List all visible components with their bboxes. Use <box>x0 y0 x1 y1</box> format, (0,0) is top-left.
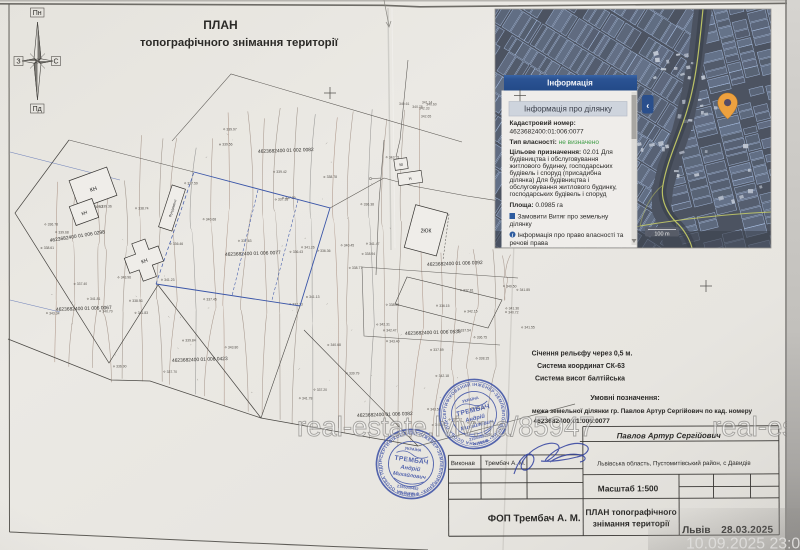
svg-text:337.20: 337.20 <box>317 388 327 392</box>
svg-text:Виконав: Виконав <box>451 460 476 467</box>
svg-text:real-estate.lviv.ua/85947: real-estate.lviv.ua/85947 <box>297 411 595 442</box>
svg-text:М: М <box>399 162 403 167</box>
svg-text:339.56: 339.56 <box>222 143 232 147</box>
svg-text:Площа: 0.0985 га: Площа: 0.0985 га <box>510 202 564 209</box>
svg-text:100 m: 100 m <box>654 232 670 238</box>
svg-text:Замовити Витяг про земельну: Замовити Витяг про земельну <box>518 214 609 221</box>
svg-text:житлового будинку, господарськ: житлового будинку, господарських <box>510 162 614 170</box>
svg-text:341.23: 341.23 <box>164 278 174 282</box>
svg-text:340.68: 340.68 <box>206 217 216 221</box>
svg-text:336.90: 336.90 <box>116 365 126 369</box>
svg-text:340.45: 340.45 <box>344 244 354 248</box>
svg-text:341.13: 341.13 <box>309 295 319 299</box>
svg-text:339.68: 339.68 <box>58 230 68 234</box>
svg-text:338.77: 338.77 <box>352 266 362 270</box>
svg-text:342.31: 342.31 <box>380 323 390 327</box>
svg-text:336.38: 336.38 <box>364 202 374 206</box>
svg-text:ділянку: ділянку <box>510 220 533 228</box>
svg-text:Пд: Пд <box>33 106 42 113</box>
svg-text:ФОП Трембач А. М.: ФОП Трембач А. М. <box>488 513 581 524</box>
svg-text:343.96: 343.96 <box>121 276 131 280</box>
svg-text:340.72: 340.72 <box>508 310 518 314</box>
svg-text:342.65: 342.65 <box>421 115 431 119</box>
svg-text:340.61: 340.61 <box>399 102 409 106</box>
svg-text:2ЮК: 2ЮК <box>421 229 432 235</box>
svg-text:будівництва і обслуговування: будівництва і обслуговування <box>510 155 599 163</box>
svg-text:337.54: 337.54 <box>461 328 471 332</box>
svg-text:Львівська область, Пустомитівс: Львівська область, Пустомитівський район… <box>597 460 751 468</box>
svg-text:339.42: 339.42 <box>276 170 286 174</box>
svg-text:Павлов Артур Сергійович: Павлов Артур Сергійович <box>617 431 722 440</box>
svg-text:Умовні позначення:: Умовні позначення: <box>590 394 659 402</box>
svg-text:342.15: 342.15 <box>467 310 477 314</box>
svg-text:336.46: 336.46 <box>173 242 183 246</box>
svg-text:338.78: 338.78 <box>327 175 337 179</box>
svg-text:337.45: 337.45 <box>206 297 216 301</box>
svg-text:337.63: 337.63 <box>241 239 251 243</box>
svg-text:338.15: 338.15 <box>479 357 489 361</box>
svg-text:4623682400:01:006:0077: 4623682400:01:006:0077 <box>510 129 584 136</box>
svg-text:341.55: 341.55 <box>524 326 534 330</box>
svg-text:Інформація про ділянку: Інформація про ділянку <box>524 105 612 114</box>
svg-text:обслуговування житлового будин: обслуговування житлового будинку, <box>510 183 618 191</box>
svg-text:342.18: 342.18 <box>439 374 449 378</box>
svg-text:339.97: 339.97 <box>226 127 236 131</box>
svg-text:речові права: речові права <box>510 239 549 247</box>
svg-text:336.78: 336.78 <box>48 223 58 227</box>
svg-text:‹: ‹ <box>646 101 649 111</box>
svg-text:Інформація: Інформація <box>547 79 593 88</box>
svg-text:Інформація про право власності: Інформація про право власності та <box>518 231 624 239</box>
svg-text:337.70: 337.70 <box>167 370 177 374</box>
svg-text:341.47: 341.47 <box>369 242 379 246</box>
svg-text:341.26: 341.26 <box>304 246 314 250</box>
svg-text:Тип власності: не визначено: Тип власності: не визначено <box>510 138 600 146</box>
svg-text:топографічного знімання терито: топографічного знімання території <box>140 37 339 49</box>
svg-text:342.33: 342.33 <box>419 107 429 111</box>
svg-text:338.74: 338.74 <box>138 207 148 211</box>
svg-text:С: С <box>53 59 58 66</box>
svg-text:будівель і споруд (присадибна: будівель і споруд (присадибна <box>510 169 602 177</box>
svg-text:337.38: 337.38 <box>278 198 288 202</box>
svg-text:Масштаб 1:500: Масштаб 1:500 <box>598 483 659 493</box>
svg-text:338.61: 338.61 <box>44 246 54 250</box>
svg-text:342.47: 342.47 <box>386 329 396 333</box>
svg-text:336.15: 336.15 <box>439 304 449 308</box>
svg-text:Цільове призначення: 02.01 Для: Цільове призначення: 02.01 Для <box>510 148 614 156</box>
svg-text:Кадастровий номер:: Кадастровий номер: <box>510 119 576 127</box>
svg-text:336.75: 336.75 <box>477 336 487 340</box>
svg-text:336.43: 336.43 <box>293 250 303 254</box>
svg-text:343.80: 343.80 <box>228 346 238 350</box>
svg-text:339.36: 339.36 <box>101 204 111 208</box>
svg-text:339.84: 339.84 <box>185 339 195 343</box>
svg-text:ділянка) Для будівництва і: ділянка) Для будівництва і <box>510 176 590 184</box>
svg-text:ПЛАН: ПЛАН <box>203 18 237 32</box>
svg-text:Пн: Пн <box>33 10 42 17</box>
svg-text:341.81: 341.81 <box>90 297 100 301</box>
svg-text:337.40: 337.40 <box>77 282 87 286</box>
svg-text:343.40: 343.40 <box>389 339 399 343</box>
svg-text:341.36: 341.36 <box>509 307 519 311</box>
svg-text:Система висот балтійська: Система висот балтійська <box>535 375 625 383</box>
svg-text:338.93: 338.93 <box>132 299 142 303</box>
svg-text:Система координат СК-63: Система координат СК-63 <box>537 363 625 370</box>
svg-text:341.78: 341.78 <box>302 396 312 400</box>
svg-text:господарських будівель і спору: господарських будівель і споруд <box>510 190 607 198</box>
svg-text:10.09.2025 23:07: 10.09.2025 23:07 <box>686 536 800 550</box>
svg-text:337.59: 337.59 <box>433 348 443 352</box>
svg-text:338.94: 338.94 <box>365 252 375 256</box>
svg-text:339.79: 339.79 <box>349 371 359 375</box>
svg-text:З: З <box>16 59 20 66</box>
svg-text:336.36: 336.36 <box>320 249 330 253</box>
svg-text:Січення рельєфу через 0,5 м.: Січення рельєфу через 0,5 м. <box>532 350 633 358</box>
svg-text:341.85: 341.85 <box>520 288 530 292</box>
svg-text:340.68: 340.68 <box>331 343 341 347</box>
svg-text:340.60: 340.60 <box>426 103 436 107</box>
svg-text:340.50: 340.50 <box>506 284 516 288</box>
